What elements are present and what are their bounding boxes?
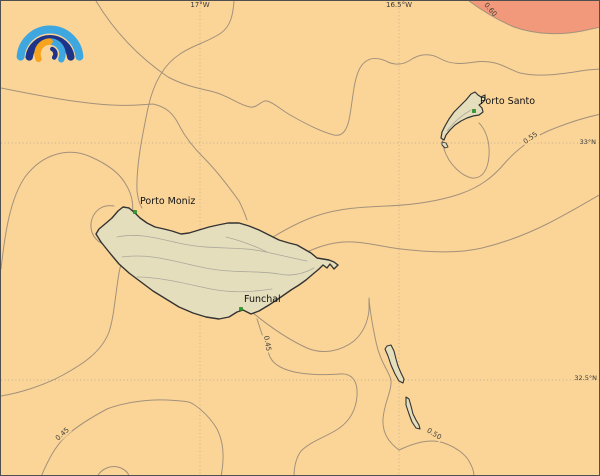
logo-arc-inner-navy — [52, 49, 55, 58]
tick-165w: 16.5°W — [386, 2, 412, 9]
ocean-contours — [1, 1, 600, 476]
graticule-grid — [1, 1, 600, 476]
rainbow-logo — [3, 1, 103, 71]
porto-santo-islet — [442, 142, 448, 148]
map-canvas: 17°W 16.5°W 33°N 32.5°N Porto Santo Port… — [0, 0, 600, 476]
porto-santo-marker — [472, 109, 475, 112]
desertas-island-south — [406, 397, 420, 429]
porto-moniz-marker — [133, 210, 136, 213]
contour-045-southwest-line — [41, 400, 223, 476]
tick-17w: 17°W — [190, 2, 209, 9]
contour-045-mid-line — [257, 319, 357, 476]
funchal-marker — [239, 307, 242, 310]
label-funchal: Funchal — [244, 295, 281, 305]
label-porto-moniz: Porto Moniz — [140, 197, 195, 207]
madeira-island — [96, 207, 338, 319]
label-porto-santo: Porto Santo — [480, 97, 535, 107]
tick-325n: 32.5°N — [574, 375, 597, 382]
porto-santo-island — [441, 92, 485, 140]
map-graphics — [1, 1, 600, 476]
contour-left-horizontal — [1, 88, 247, 220]
contour-050-line — [253, 298, 474, 476]
contour-055-line — [273, 114, 600, 237]
tick-33n: 33°N — [580, 139, 596, 146]
contour-bottom-bump — [97, 467, 129, 476]
logo-arc-orange — [37, 42, 49, 59]
contour-east-parallel — [305, 194, 600, 253]
contour-west-wrap — [1, 152, 133, 396]
desertas-island-north — [385, 345, 404, 383]
